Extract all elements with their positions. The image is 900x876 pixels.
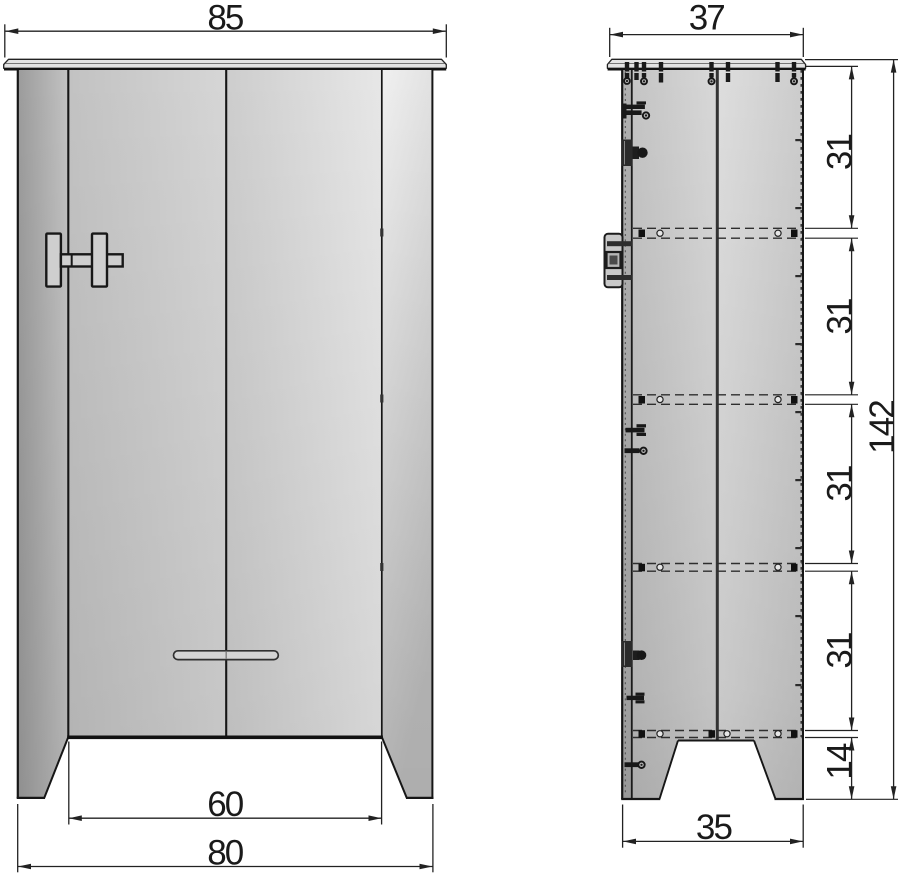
svg-text:31: 31 <box>820 633 859 669</box>
svg-text:60: 60 <box>207 785 244 824</box>
svg-text:80: 80 <box>207 833 244 872</box>
svg-text:142: 142 <box>863 401 900 454</box>
svg-text:31: 31 <box>820 299 859 335</box>
svg-text:14: 14 <box>820 743 859 780</box>
svg-text:37: 37 <box>689 0 725 37</box>
svg-text:31: 31 <box>820 466 859 502</box>
svg-text:35: 35 <box>696 808 732 847</box>
svg-text:31: 31 <box>820 135 859 171</box>
svg-text:85: 85 <box>207 0 243 38</box>
